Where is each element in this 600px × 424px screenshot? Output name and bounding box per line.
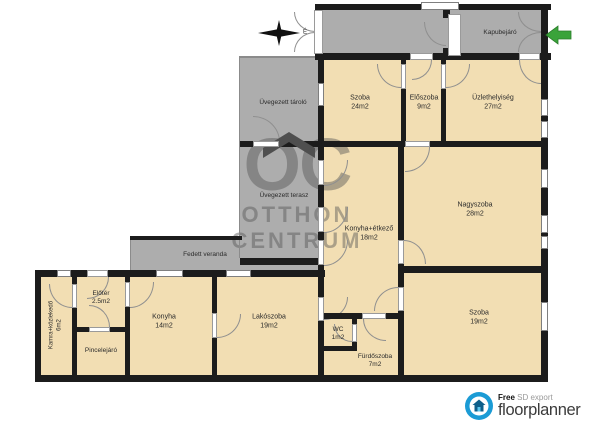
room-label-uvegezett-terasz: Üvegezett terasz [260, 192, 309, 200]
room-label-uzlethelyiseg: Üzlethelyiség 27m2 [472, 94, 514, 112]
window [156, 270, 183, 277]
door-gap [398, 240, 404, 264]
door-gap [318, 160, 324, 185]
room-label-kapubejaro: Kapubejáró [483, 29, 516, 37]
window [541, 99, 548, 116]
room-label-wc: WC 1m2 [332, 326, 345, 342]
door-gap [401, 64, 406, 89]
door-gap [318, 207, 324, 232]
door-gap [410, 53, 433, 60]
gate-panel [448, 14, 461, 56]
door-gap [318, 240, 324, 265]
room-label-uvegezett-tarolo: Üvegezett tároló [259, 99, 306, 107]
door-gap [253, 141, 279, 147]
room-label-szoba-also: Szoba 19m2 [469, 309, 489, 327]
wall-segment [318, 141, 548, 147]
room-label-furdoszoba: Fürdőszoba 7m2 [358, 353, 392, 369]
door-gap [72, 284, 77, 308]
room-label-eloszoba: Előszoba 9m2 [410, 94, 439, 112]
area-edge [240, 56, 318, 58]
room-label-kamra: Kamra+közlekedő 6m2 [49, 301, 64, 349]
window [541, 121, 548, 138]
door-gap [318, 297, 324, 321]
window [421, 2, 459, 10]
wall-segment [130, 236, 242, 240]
floorplanner-logo-icon [464, 391, 494, 421]
door-gap [441, 64, 446, 89]
wall-segment [322, 346, 357, 351]
wall-segment [35, 375, 548, 382]
compass-letter: É [303, 29, 307, 37]
window [541, 236, 548, 249]
double-door-panel [314, 10, 323, 54]
room-label-szoba-felso: Szoba 24m2 [350, 94, 370, 112]
footer-text: Free SD export floorplanner [498, 393, 580, 419]
door-gap [362, 313, 386, 319]
footer-brand-name: floorplanner [498, 402, 580, 419]
door-gap [398, 287, 404, 311]
door-gap [352, 324, 357, 342]
door-gap [87, 270, 108, 277]
room-label-konyha-etkezo: Konyha+étkező 18m2 [345, 225, 393, 243]
wall-segment [398, 266, 548, 273]
area-edge [239, 56, 240, 258]
window [57, 270, 71, 277]
door-gap [405, 141, 430, 147]
entrance-arrow-icon [545, 25, 573, 45]
room-label-pincelejaro: Pincelejáró [85, 347, 117, 355]
room-label-fedett-veranda: Fedett veranda [183, 251, 227, 259]
window [541, 169, 548, 188]
room-label-nagyszoba: Nagyszoba 28m2 [457, 201, 492, 219]
window [318, 83, 324, 106]
window [541, 215, 548, 233]
floor-plan: OC OTTHON CENTRUM [0, 0, 600, 424]
door-gap [212, 313, 217, 338]
door-gap [519, 53, 540, 60]
floorplanner-branding: Free SD export floorplanner [464, 390, 596, 422]
wall-segment [35, 270, 41, 382]
window [226, 270, 251, 277]
wall-segment [240, 258, 324, 265]
wall-segment [315, 53, 551, 60]
room-label-konyha: Konyha 14m2 [152, 313, 176, 331]
room-label-lakoszoba: Lakószoba 19m2 [252, 313, 286, 331]
door-gap [89, 327, 110, 332]
wall-segment [318, 313, 404, 319]
door-gap [125, 282, 130, 307]
room-label-eloter: Előtér 2.5m2 [92, 290, 110, 306]
area-edge [130, 236, 131, 270]
window [541, 302, 548, 331]
